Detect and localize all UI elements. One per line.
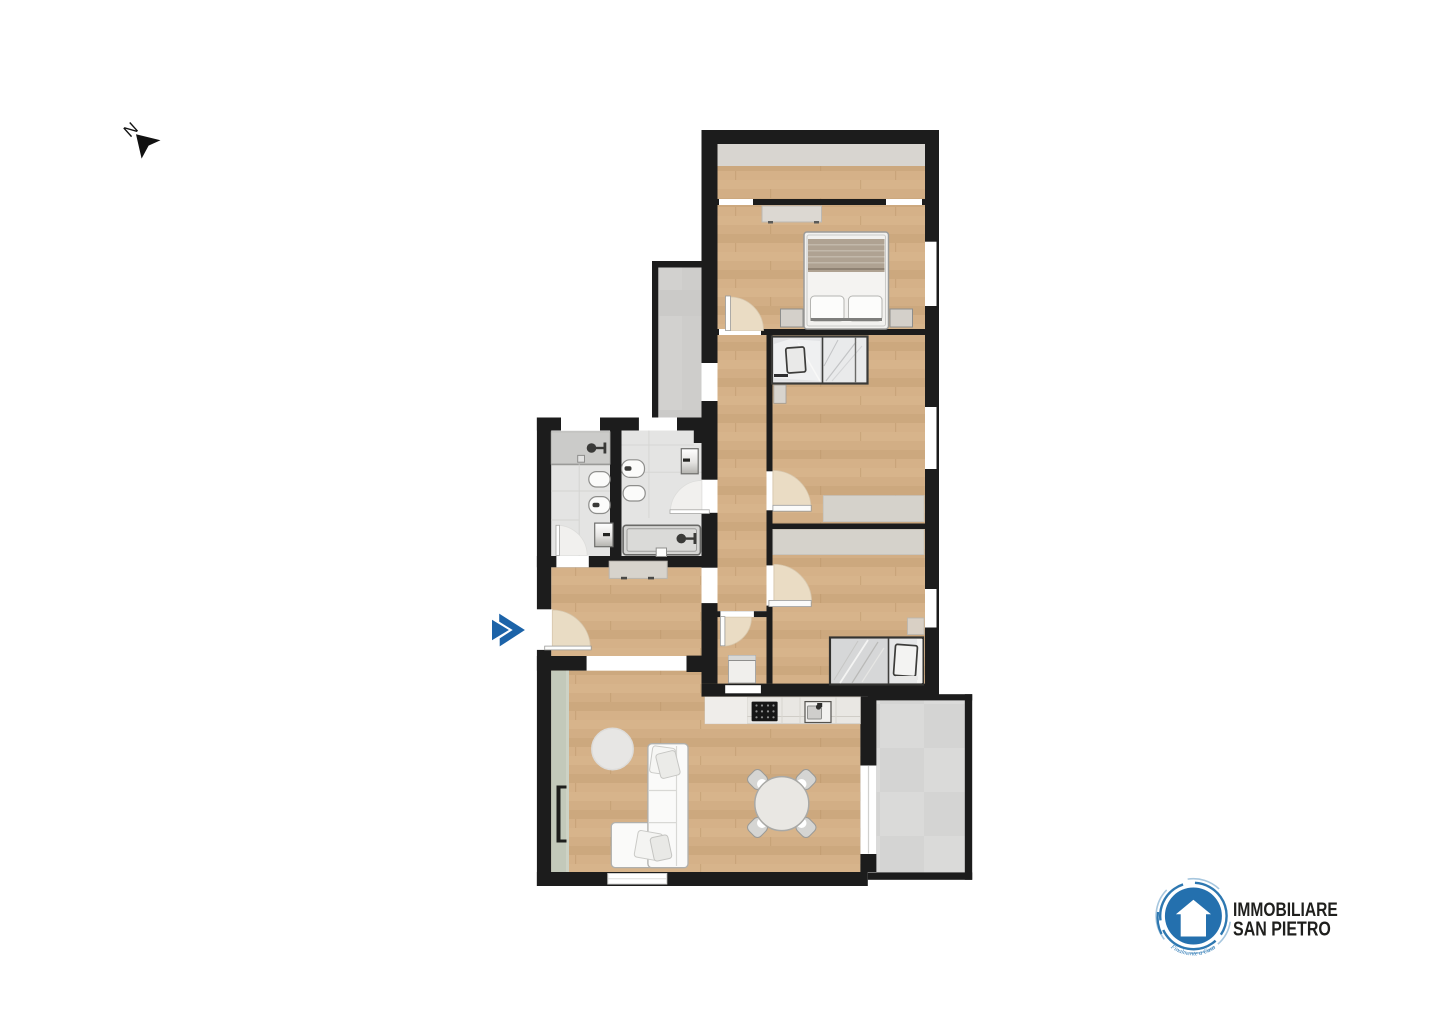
svg-text:SAN PIETRO: SAN PIETRO: [1233, 918, 1331, 940]
